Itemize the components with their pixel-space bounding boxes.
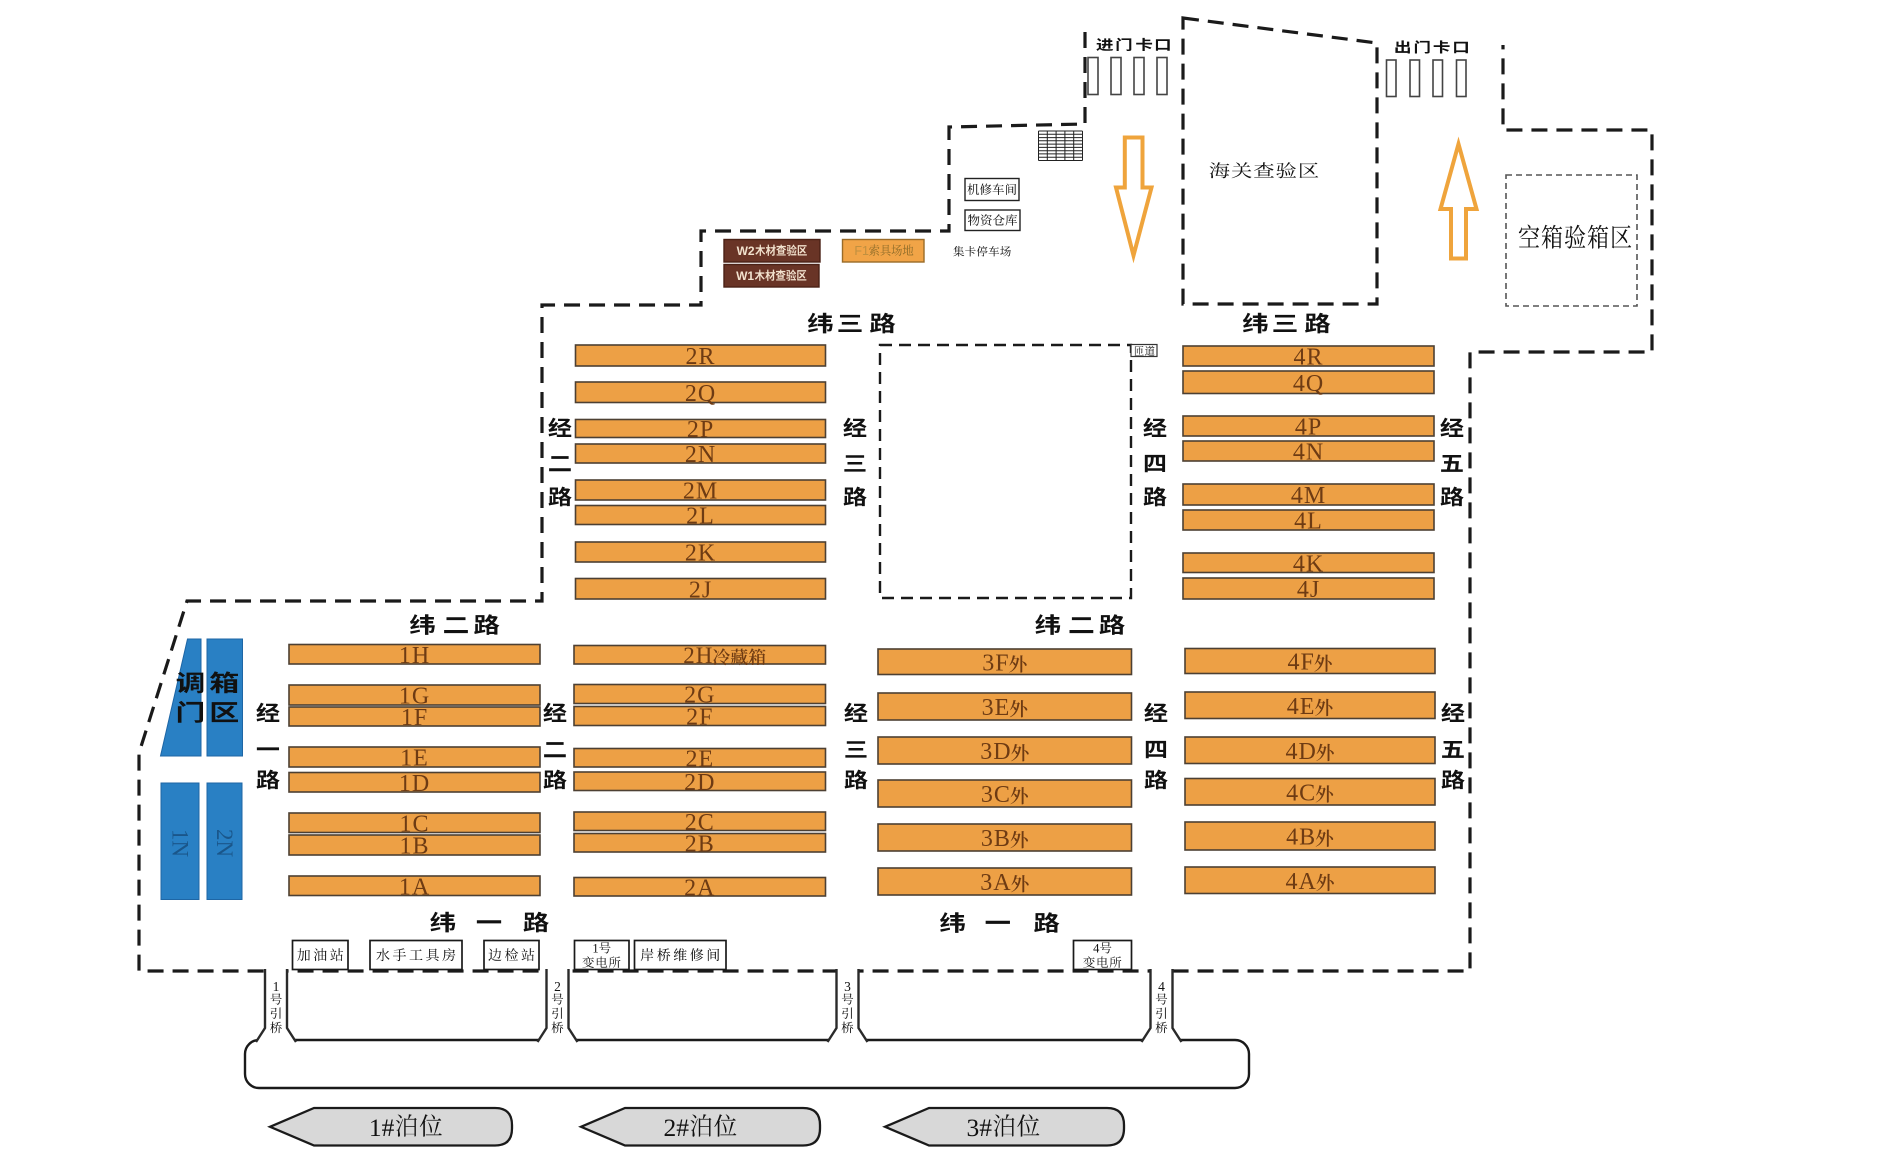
svg-text:2J: 2J xyxy=(689,577,712,603)
svg-text:1H: 1H xyxy=(399,643,430,669)
svg-text:2K: 2K xyxy=(685,541,716,567)
svg-text:3B: 3B xyxy=(981,826,1011,852)
svg-text:2N: 2N xyxy=(685,442,716,468)
svg-text:4L: 4L xyxy=(1294,509,1323,535)
svg-text:2M: 2M xyxy=(683,479,718,505)
svg-text:4: 4 xyxy=(1158,979,1165,994)
svg-text:4C: 4C xyxy=(1286,780,1316,806)
svg-text:2A: 2A xyxy=(684,875,715,901)
svg-text:2L: 2L xyxy=(686,504,715,530)
svg-text:2N: 2N xyxy=(212,829,237,858)
svg-text:2F: 2F xyxy=(686,705,713,731)
svg-text:W1: W1 xyxy=(736,269,754,283)
svg-text:4F: 4F xyxy=(1288,650,1315,676)
svg-text:4R: 4R xyxy=(1293,345,1323,371)
svg-text:1F: 1F xyxy=(401,705,428,731)
svg-text:1: 1 xyxy=(273,979,280,994)
svg-text:3F: 3F xyxy=(982,650,1009,676)
svg-text:3#: 3# xyxy=(967,1113,993,1142)
svg-text:F1: F1 xyxy=(854,244,869,258)
svg-text:3: 3 xyxy=(844,979,851,994)
svg-text:2B: 2B xyxy=(685,831,715,857)
svg-text:4: 4 xyxy=(1093,942,1100,956)
svg-text:4N: 4N xyxy=(1293,440,1324,466)
svg-text:1A: 1A xyxy=(399,874,430,900)
svg-text:2Q: 2Q xyxy=(685,381,716,407)
svg-text:4K: 4K xyxy=(1293,551,1324,577)
svg-text:3A: 3A xyxy=(980,870,1011,896)
svg-text:4M: 4M xyxy=(1291,483,1326,509)
svg-text:1D: 1D xyxy=(399,771,430,797)
svg-text:4B: 4B xyxy=(1286,825,1316,851)
svg-text:4E: 4E xyxy=(1287,694,1316,720)
svg-text:2P: 2P xyxy=(687,417,714,443)
svg-text:2H: 2H xyxy=(683,643,713,668)
svg-text:4Q: 4Q xyxy=(1293,371,1324,397)
svg-text:1N: 1N xyxy=(168,829,193,858)
svg-text:3C: 3C xyxy=(981,782,1011,808)
svg-text:3E: 3E xyxy=(982,695,1011,721)
svg-text:4J: 4J xyxy=(1297,577,1320,603)
svg-text:1#: 1# xyxy=(369,1113,395,1142)
svg-text:4P: 4P xyxy=(1295,415,1322,441)
svg-text:4A: 4A xyxy=(1286,869,1317,895)
svg-text:2R: 2R xyxy=(685,344,715,370)
svg-text:W2: W2 xyxy=(737,244,755,258)
svg-text:3D: 3D xyxy=(980,739,1011,765)
svg-text:4D: 4D xyxy=(1286,739,1317,765)
svg-text:2: 2 xyxy=(554,979,561,994)
svg-text:1: 1 xyxy=(592,942,598,956)
svg-text:2E: 2E xyxy=(685,746,714,772)
svg-text:2D: 2D xyxy=(684,770,715,796)
svg-text:1B: 1B xyxy=(399,834,429,860)
svg-text:1E: 1E xyxy=(400,746,429,772)
svg-text:2#: 2# xyxy=(664,1113,690,1142)
